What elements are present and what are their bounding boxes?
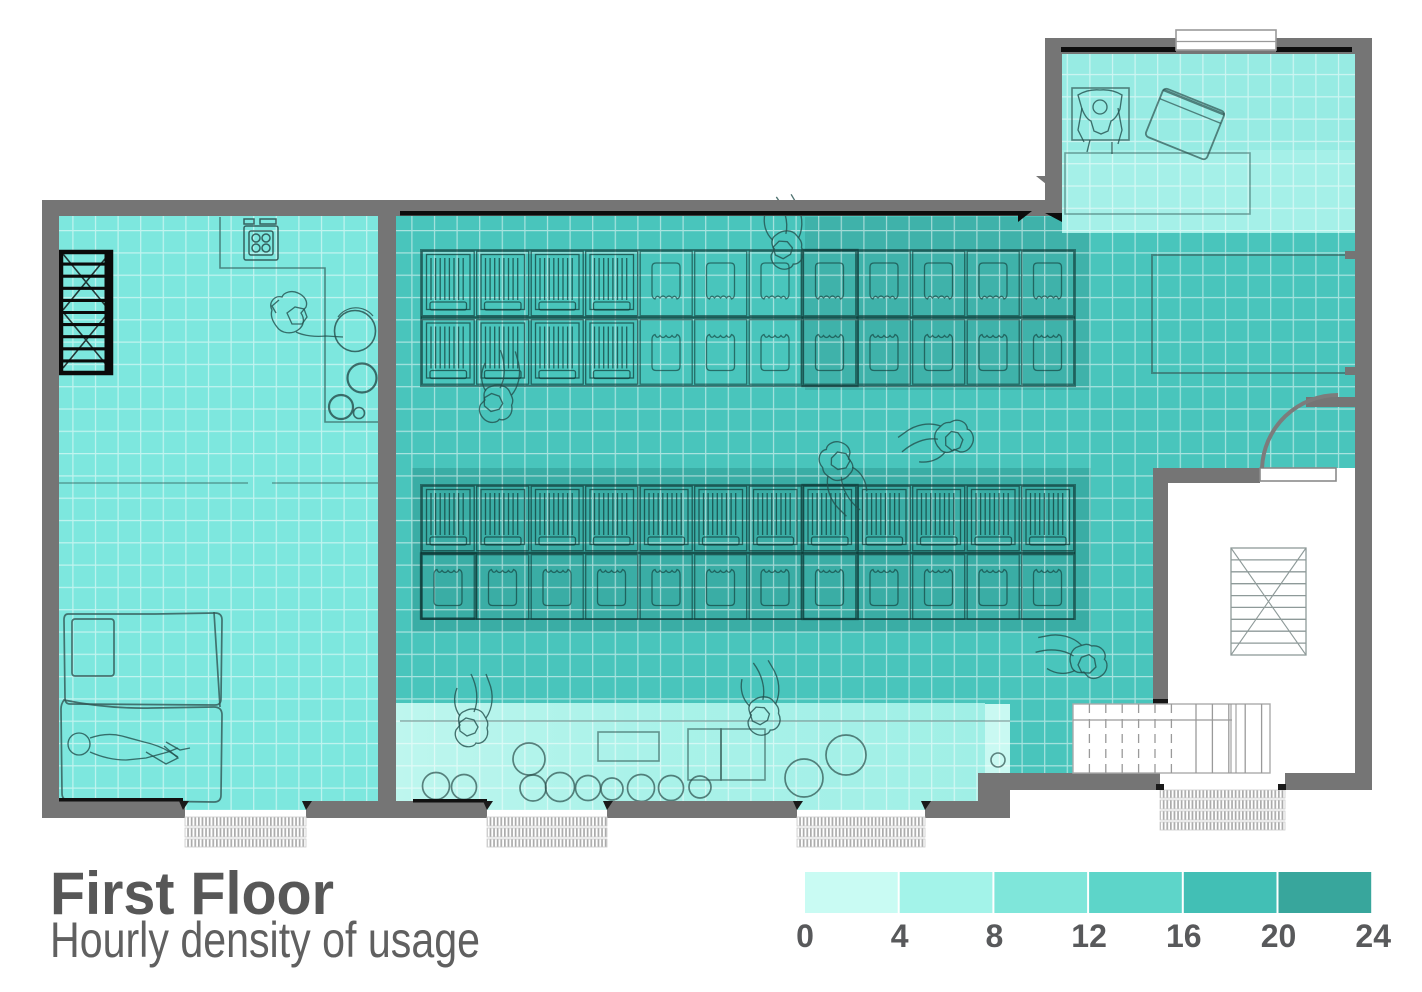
svg-text:0: 0: [796, 918, 814, 954]
svg-text:4: 4: [891, 918, 909, 954]
svg-text:16: 16: [1166, 918, 1202, 954]
svg-text:12: 12: [1071, 918, 1107, 954]
svg-text:24: 24: [1355, 918, 1391, 954]
svg-text:8: 8: [986, 918, 1004, 954]
svg-text:Hourly density of usage: Hourly density of usage: [50, 912, 480, 968]
svg-text:20: 20: [1261, 918, 1297, 954]
